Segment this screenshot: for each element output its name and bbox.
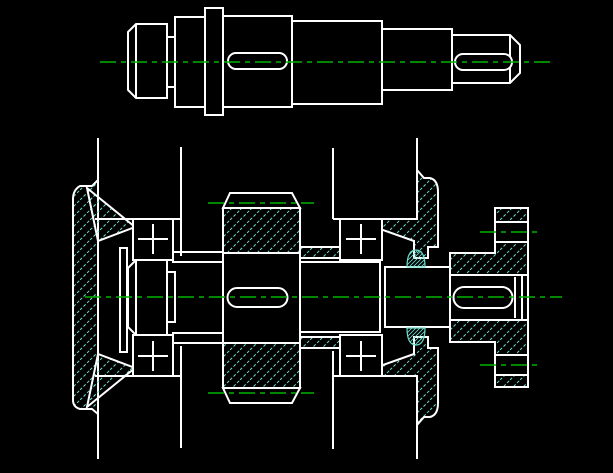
shaft-cylinder-5[interactable]	[382, 29, 452, 90]
seal-ring-upper[interactable]	[407, 250, 425, 267]
sleeve-left-lower[interactable]	[173, 333, 223, 343]
retainer-plate[interactable]	[120, 248, 127, 352]
cap-right-upper[interactable]	[380, 170, 438, 258]
spacer-sleeve-lower[interactable]	[300, 337, 340, 348]
section-view	[73, 138, 562, 459]
gear-rim-lower[interactable]	[223, 343, 300, 388]
gear-crown-upper[interactable]	[223, 193, 300, 208]
gear-rim-upper[interactable]	[223, 208, 300, 253]
gear-crown-lower[interactable]	[223, 388, 300, 403]
keyway-slot-middle[interactable]	[228, 53, 287, 69]
front-view	[100, 8, 552, 115]
spacer-sleeve-upper[interactable]	[300, 247, 340, 258]
cad-drawing-canvas[interactable]	[0, 0, 613, 473]
shaft-cylinder-4[interactable]	[292, 21, 382, 104]
cad-drawing-svg[interactable]	[0, 0, 613, 473]
shaft-left-cylinder[interactable]	[128, 24, 167, 98]
cap-right-lower[interactable]	[380, 337, 438, 425]
seal-ring-lower[interactable]	[407, 328, 425, 345]
